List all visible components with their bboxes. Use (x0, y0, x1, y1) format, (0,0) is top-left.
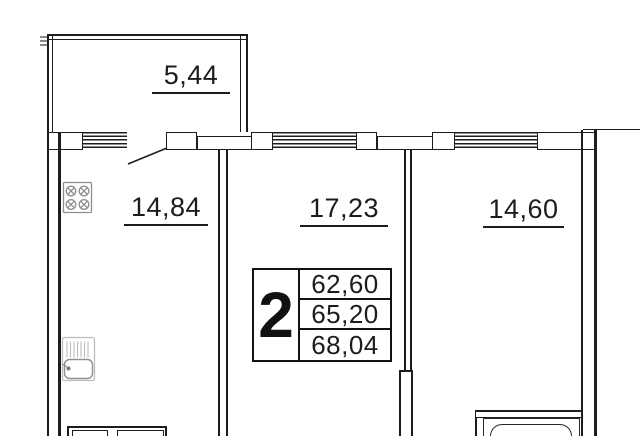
floor-plan: 5,44 14,84 17,23 14,60 2 62,60 65,20 68,… (0, 0, 640, 436)
area-value-living: 62,60 (300, 270, 390, 300)
kitchen-area-label: 14,84 (124, 192, 208, 226)
door-swing-line (128, 148, 167, 164)
area-value-apartment: 65,20 (300, 300, 390, 330)
room-count-value: 2 (254, 270, 300, 360)
living-room-area-label: 17,23 (300, 193, 388, 227)
balcony-area-label: 5,44 (152, 60, 230, 94)
stove-icon (64, 183, 92, 213)
area-summary-table: 2 62,60 65,20 68,04 (252, 268, 392, 362)
wall-ticks (40, 37, 47, 45)
bedroom-area-label: 14,60 (483, 194, 564, 228)
area-value-total: 68,04 (300, 330, 390, 360)
sink-icon (62, 338, 95, 381)
